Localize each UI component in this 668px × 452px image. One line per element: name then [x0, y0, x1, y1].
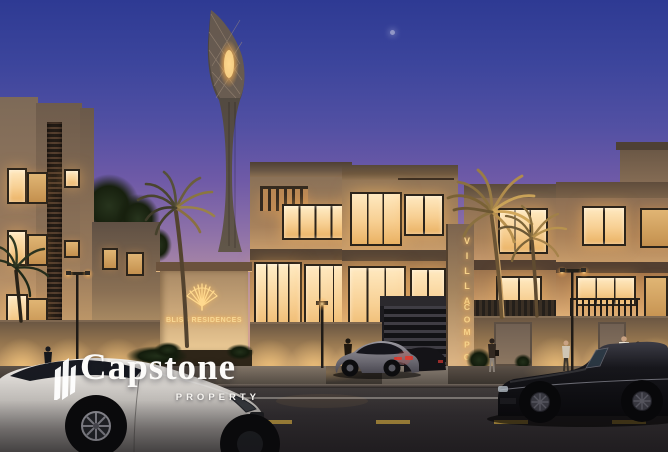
lamp-light-pool — [276, 394, 368, 408]
capstone-logo-icon — [50, 352, 78, 400]
pedestrian — [562, 341, 570, 372]
pedestrian — [488, 338, 499, 372]
villa-compound-rendering: BLISS RESIDENCES VILLA COMPOUND — [0, 0, 668, 452]
watermark-brand: Capstone — [80, 346, 236, 390]
street-lamp — [315, 297, 329, 368]
watermark: Capstone PROPERTY — [50, 346, 264, 410]
watermark-tagline: PROPERTY — [84, 392, 260, 403]
black-convertible — [487, 342, 668, 427]
